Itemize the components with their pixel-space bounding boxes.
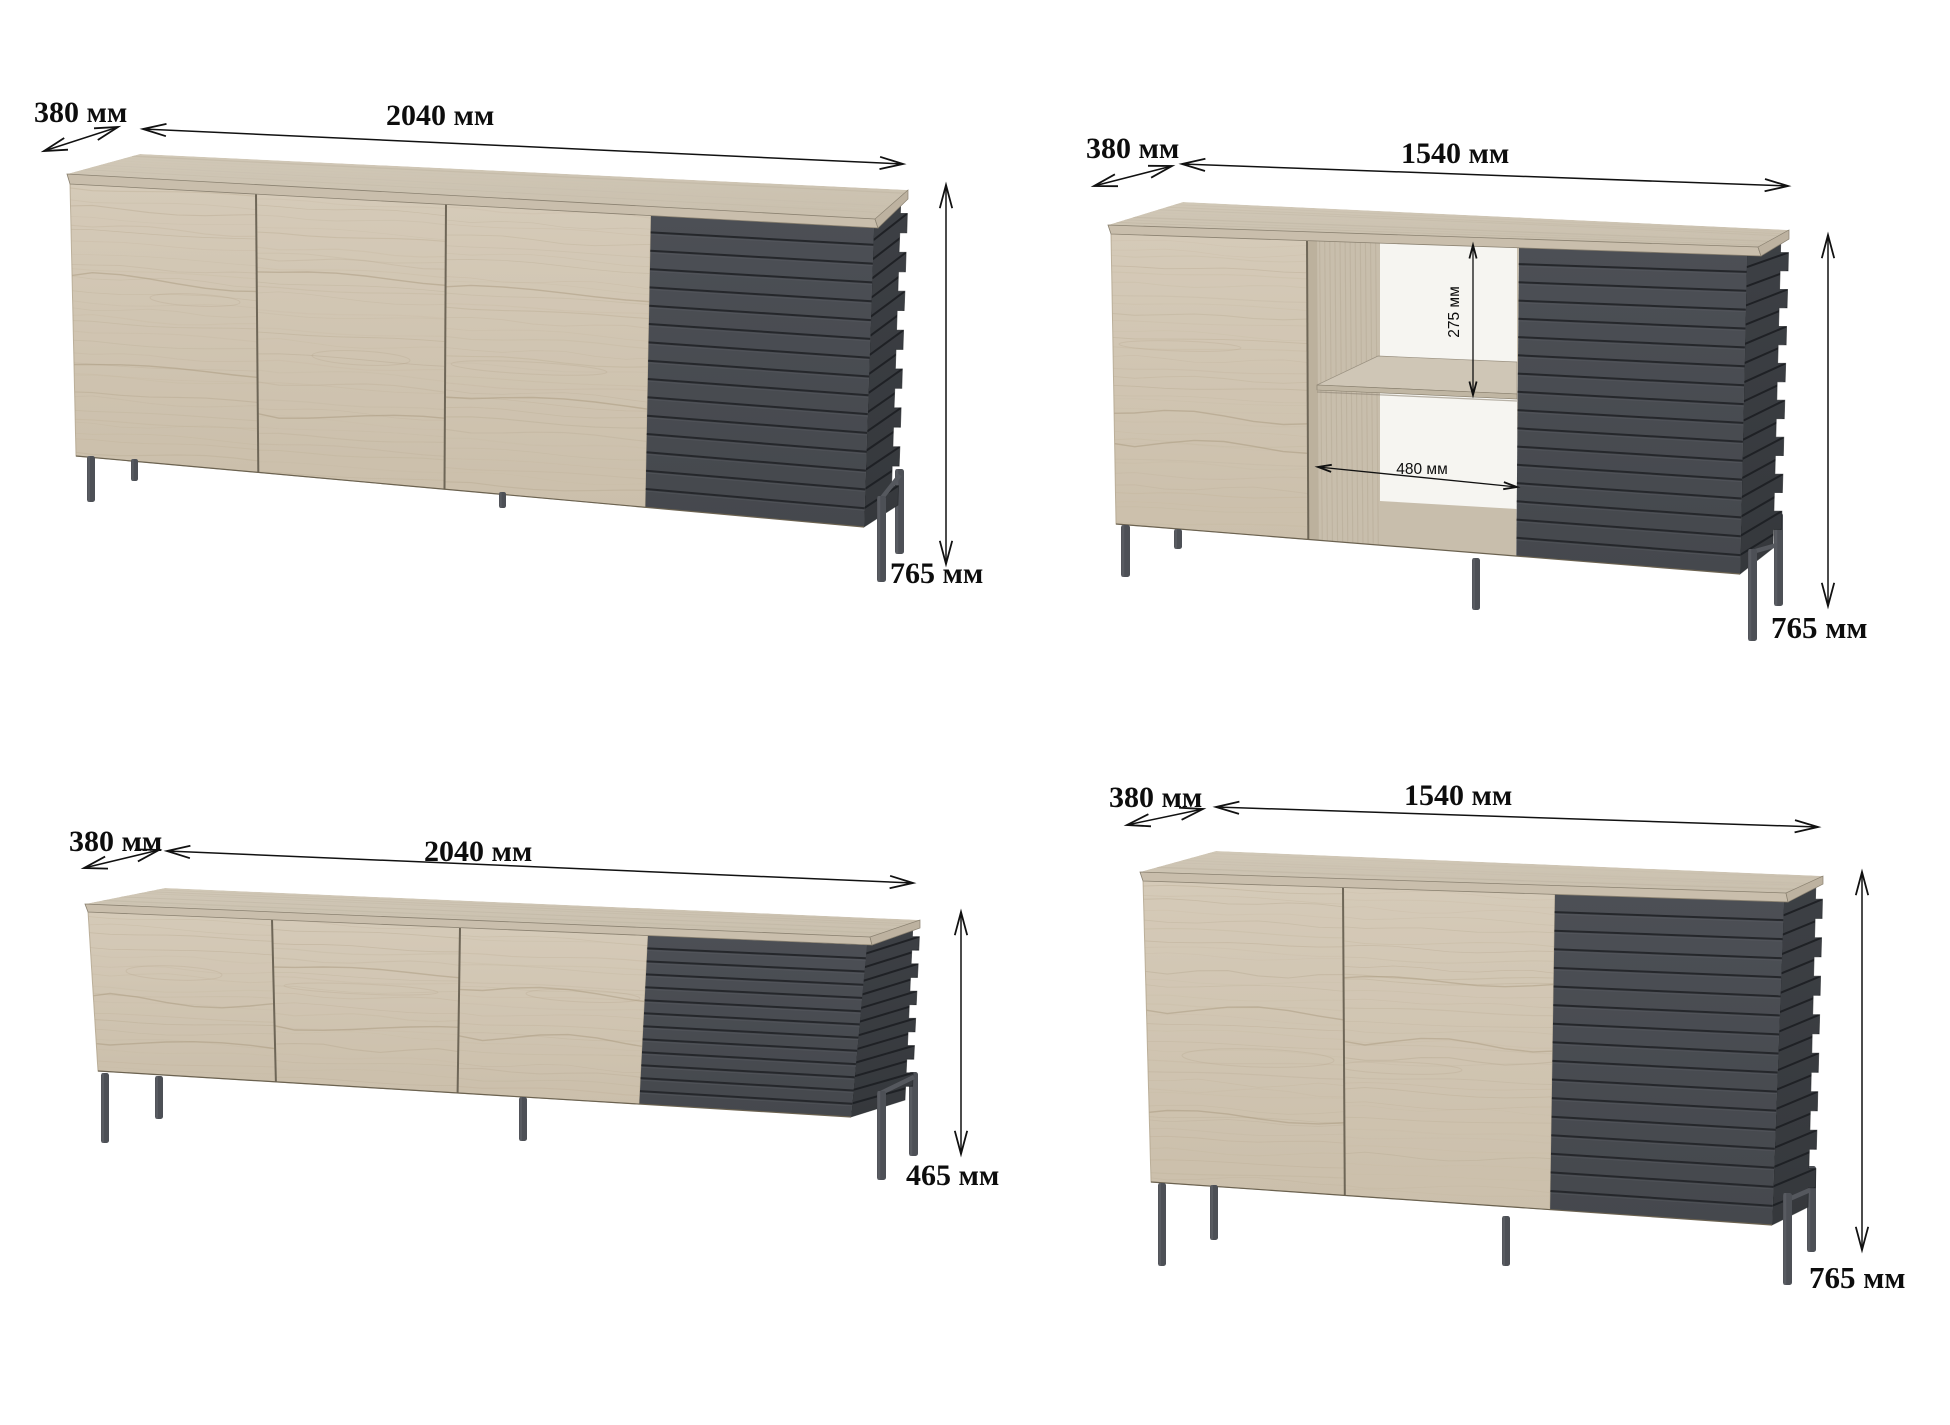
svg-text:465 мм: 465 мм — [906, 1159, 999, 1192]
svg-text:1540 мм: 1540 мм — [1404, 779, 1512, 812]
svg-text:765 мм: 765 мм — [890, 557, 983, 590]
svg-text:275 мм: 275 мм — [1446, 286, 1463, 337]
svg-text:765 мм: 765 мм — [1809, 1260, 1905, 1295]
svg-text:765 мм: 765 мм — [1771, 610, 1867, 645]
svg-text:1540 мм: 1540 мм — [1401, 137, 1509, 170]
svg-text:380 мм: 380 мм — [1086, 132, 1179, 165]
svg-text:2040 мм: 2040 мм — [386, 99, 494, 132]
svg-text:380 мм: 380 мм — [34, 96, 127, 129]
